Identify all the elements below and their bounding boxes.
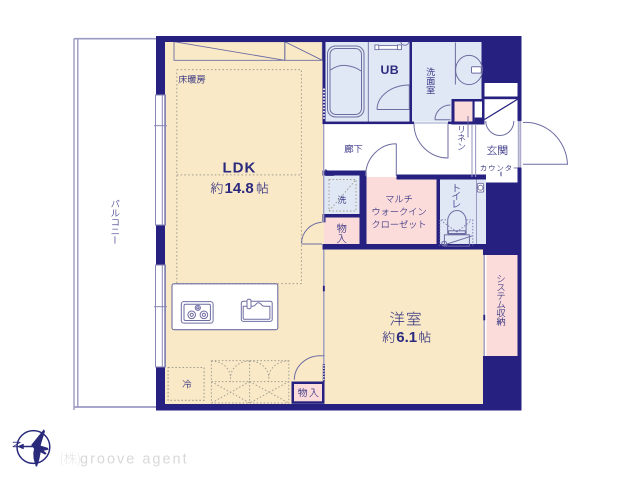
svg-text:UB: UB: [381, 63, 400, 77]
svg-text:LDK: LDK: [223, 159, 257, 176]
svg-text:14.8: 14.8: [225, 180, 254, 197]
svg-text:groove agent: groove agent: [80, 452, 189, 468]
svg-text:6.1: 6.1: [396, 329, 417, 346]
